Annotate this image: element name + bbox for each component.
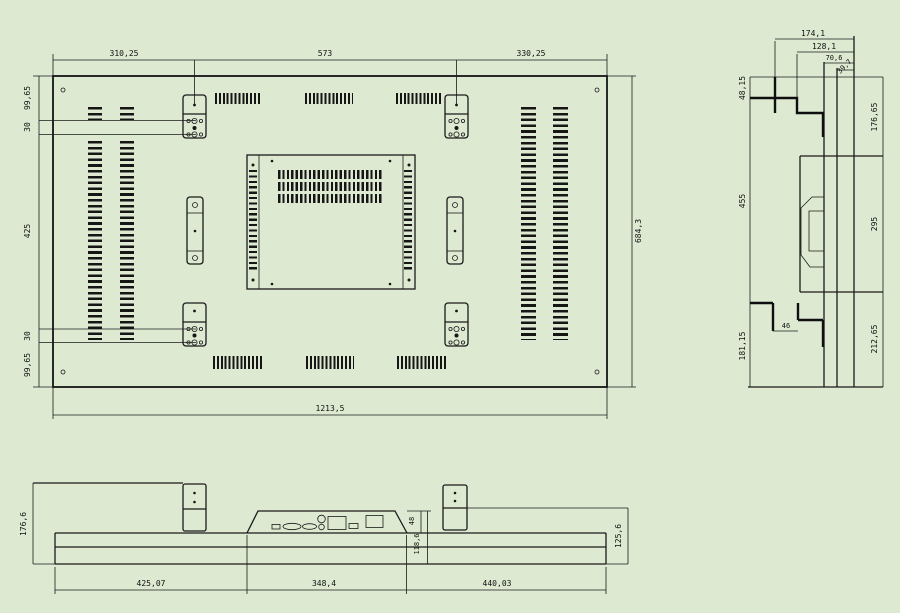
side-dimensions: 174,1 128,1 70,6 39,7 48,15 455 181,15 1… xyxy=(738,29,883,387)
dim-side-right-top: 176,65 xyxy=(870,102,879,131)
dim-rear-top-center: 573 xyxy=(318,49,333,58)
dim-side-depth-3: 70,6 xyxy=(826,54,843,62)
dim-side-right-bottom: 212,65 xyxy=(870,324,879,353)
dim-rear-bottom-width: 1213,5 xyxy=(316,404,345,413)
dim-bottom-seg-center: 348,4 xyxy=(312,579,336,588)
dim-bottom-seg-left: 425,07 xyxy=(137,579,166,588)
drawing-svg: 310,25 573 330,25 99,65 30 425 30 99,65 … xyxy=(0,0,900,613)
dim-rear-right-height: 684,3 xyxy=(634,219,643,243)
serial-port xyxy=(303,524,317,530)
vent-slots-bottom-group1 xyxy=(213,356,263,369)
vent-slots-left-col1-upper xyxy=(88,107,102,120)
dim-rear-left-gap-top: 30 xyxy=(23,122,32,132)
dim-bottom-height-left: 176,6 xyxy=(19,512,28,536)
bottom-dimensions: 176,6 48 118,6 125,6 425,07 348,4 440,03 xyxy=(19,483,628,594)
vent-slots-right-col1 xyxy=(521,107,536,340)
dim-side-left-top: 48,15 xyxy=(738,76,747,100)
vga-port xyxy=(283,523,301,529)
vent-slots-top-group1 xyxy=(215,93,262,104)
dim-rear-top-left: 310,25 xyxy=(110,49,139,58)
dim-side-left-bottom: 181,15 xyxy=(738,331,747,360)
dim-conn-height: 48 xyxy=(408,517,416,525)
bracket-bottom-right xyxy=(445,303,468,346)
vent-slots-top-group2 xyxy=(305,93,353,104)
handle-cutout xyxy=(801,197,824,267)
bottom-body xyxy=(33,533,628,564)
dim-bottom-height-right: 125,6 xyxy=(614,524,623,548)
technical-drawing-page: 310,25 573 330,25 99,65 30 425 30 99,65 … xyxy=(0,0,900,613)
vent-slots-left-col2-upper xyxy=(120,107,134,120)
dim-rear-left-middle: 425 xyxy=(23,224,32,239)
bracket-bottom-left xyxy=(183,303,206,346)
bottom-bracket-left xyxy=(183,484,206,531)
vent-slots-top-group3 xyxy=(396,93,443,104)
bracket-mid-right xyxy=(447,197,463,264)
dim-rear-left-top-margin: 99,65 xyxy=(23,86,32,110)
plate-vent-strip-right xyxy=(404,170,412,272)
dim-side-depth-2: 128,1 xyxy=(812,42,836,51)
dim-side-depth-1: 174,1 xyxy=(801,29,825,38)
side-top-bracket-profile xyxy=(750,41,823,137)
dim-bottom-seg-right: 440,03 xyxy=(483,579,512,588)
connector-port xyxy=(272,525,280,530)
power-port xyxy=(366,516,383,528)
dim-rear-top-right: 330,25 xyxy=(517,49,546,58)
dim-rear-left-gap-bottom: 30 xyxy=(23,331,32,341)
jack-port-2 xyxy=(319,524,325,530)
plate-vent-row2 xyxy=(278,182,383,191)
lan-port xyxy=(328,517,346,530)
bracket-mid-left xyxy=(187,197,203,264)
dim-side-right-mid: 295 xyxy=(870,217,879,232)
bottom-view: 176,6 48 118,6 125,6 425,07 348,4 440,03 xyxy=(19,483,628,594)
plate-vent-row3 xyxy=(278,194,383,203)
side-view: 46 174,1 128,1 70,6 39,7 48,15 455 181,1… xyxy=(738,29,883,387)
vent-slots-left-col2 xyxy=(120,141,134,340)
side-bottom-bracket-profile: 46 xyxy=(750,303,823,347)
vent-slots-right-col2 xyxy=(553,107,568,340)
jack-port-1 xyxy=(318,515,326,523)
dim-side-left-mid: 455 xyxy=(738,194,747,209)
vent-slots-left-col1 xyxy=(88,141,102,340)
vent-slots-bottom-group2 xyxy=(306,356,354,369)
plate-vent-strip-left xyxy=(249,170,257,272)
plate-vent-row1 xyxy=(278,170,383,179)
dim-rear-left-bottom-margin: 99,65 xyxy=(23,353,32,377)
dim-body-height: 118,6 xyxy=(413,533,421,554)
vent-slots-bottom-group3 xyxy=(397,356,446,369)
bottom-bracket-right xyxy=(443,485,467,530)
usb-port xyxy=(349,524,358,529)
dim-side-bracket-width: 46 xyxy=(782,322,790,330)
connector-panel xyxy=(247,511,407,533)
